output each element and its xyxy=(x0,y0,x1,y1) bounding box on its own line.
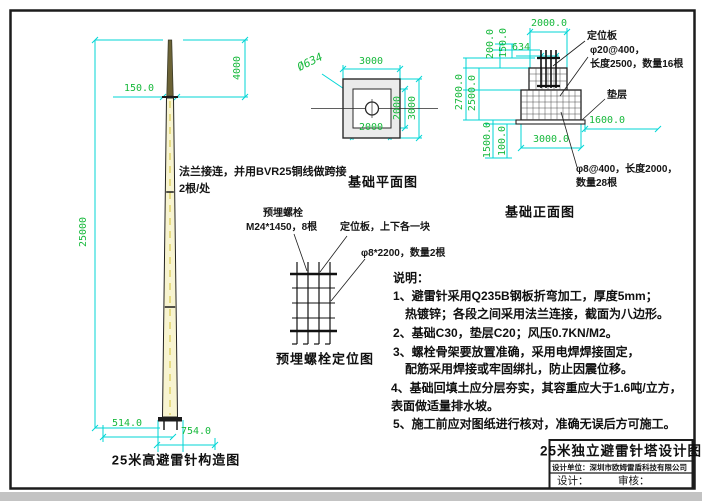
dim-plan-inner-bottom: 2000 xyxy=(359,123,383,133)
flange-note-line2: 2根/处 xyxy=(179,184,210,195)
dim-front-2500: 2500.0 xyxy=(468,75,478,111)
label-rebar-v-line1: φ20@400， xyxy=(590,46,645,56)
dim-plan-outer-right: 3000 xyxy=(408,96,418,120)
label-rebar-v-line2: 长度2500，数量16根 xyxy=(590,60,683,70)
dim-front-634: 634 xyxy=(512,43,530,53)
notes-line-8: 5、施工前应对图纸进行核对，准确无误后方可施工。 xyxy=(393,418,676,430)
drawing-title: 25米独立避雷针塔设计图 xyxy=(540,444,702,458)
dim-front-3000: 3000.0 xyxy=(533,135,569,145)
label-cushion-layer: 垫层 xyxy=(607,91,627,101)
cad-drawing-sheet: 25000 4000 150.0 514.0 754.0 法兰接连，并用BVR2… xyxy=(0,0,702,501)
reviewer-label: 审核： xyxy=(618,476,650,487)
design-company: 设计单位：深圳市欧姆雷盾科技有限公司 xyxy=(552,464,687,472)
designer-label: 设计： xyxy=(557,476,589,487)
notes-heading: 说明： xyxy=(393,272,429,284)
notes-line-5: 配筋采用焊接或牢固绑扎，防止因震位移。 xyxy=(405,363,633,375)
dim-pole-total-height: 25000 xyxy=(79,217,89,247)
dim-front-150: 150.0 xyxy=(499,28,509,58)
flange-note-line1: 法兰接连，并用BVR25铜线做跨接 xyxy=(179,167,346,178)
plan-view-title: 基础平面图 xyxy=(348,176,418,189)
front-view-title: 基础正面图 xyxy=(505,206,575,219)
dim-front-1500: 1500.0 xyxy=(483,122,493,158)
label-rebar-h-line2: 数量28根 xyxy=(576,179,617,189)
label-embedded-bolt-line1: 预埋螺栓 xyxy=(263,209,303,219)
dim-flange-width: 754.0 xyxy=(181,427,211,437)
notes-line-4: 3、螺栓骨架要放置准确，采用电焊焊接固定， xyxy=(393,346,640,358)
dim-front-200: 200.0 xyxy=(486,29,496,59)
notes-line-2: 热镀锌；各段之间采用法兰连接，截面为八边形。 xyxy=(405,308,669,320)
dim-plan-outer-top: 3000 xyxy=(359,57,383,67)
dim-front-1600: 1600.0 xyxy=(589,116,625,126)
label-bolt-plate: 定位板，上下各一块 xyxy=(340,223,430,233)
notes-line-6: 4、基础回填土应分层夯实，其容重应大于1.6吨/立方， xyxy=(391,382,682,394)
notes-line-1: 1、避雷针采用Q235B钢板折弯加工，厚度5mm； xyxy=(393,290,658,302)
notes-line-7: 表面做适量排水坡。 xyxy=(391,400,499,412)
label-rebar-h-line1: φ8@400，长度2000， xyxy=(576,165,677,175)
label-bolt-hoop: φ8*2200，数量2根 xyxy=(361,249,445,259)
pole-view-title: 25米高避雷针构造图 xyxy=(112,454,240,467)
dim-pole-top-width: 150.0 xyxy=(124,84,154,94)
bolt-cage xyxy=(290,262,337,344)
dim-front-100: 100.0 xyxy=(498,126,508,156)
bolt-view-title: 预埋螺栓定位图 xyxy=(276,353,374,366)
dim-front-2700: 2700.0 xyxy=(455,74,465,110)
dim-needle-height: 4000 xyxy=(233,56,243,80)
page-edge-shadow xyxy=(0,492,702,501)
dim-pole-base-width: 514.0 xyxy=(112,419,142,429)
label-positioning-plate: 定位板 xyxy=(587,32,617,42)
dim-plan-inner-right: 2000 xyxy=(393,96,403,120)
label-embedded-bolt-line2: M24*1450，8根 xyxy=(246,223,317,233)
dim-front-top-width: 2000.0 xyxy=(531,19,567,29)
notes-line-3: 2、基础C30，垫层C20；风压0.7KN/M2。 xyxy=(393,327,618,339)
